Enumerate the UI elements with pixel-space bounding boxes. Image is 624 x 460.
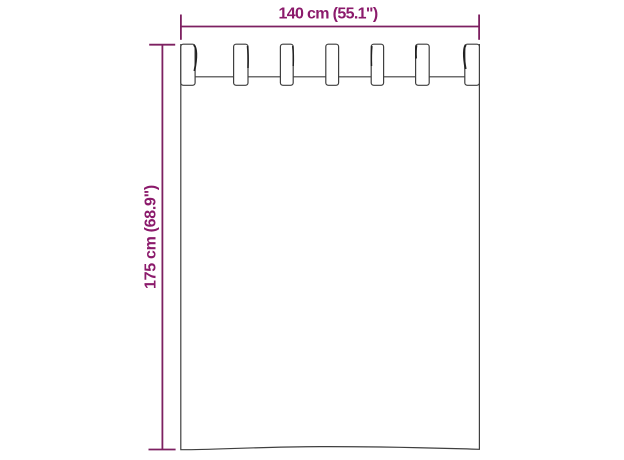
svg-text:140 cm (55.1"): 140 cm (55.1") — [279, 6, 378, 23]
svg-text:175 cm (68.9"): 175 cm (68.9") — [142, 185, 159, 289]
